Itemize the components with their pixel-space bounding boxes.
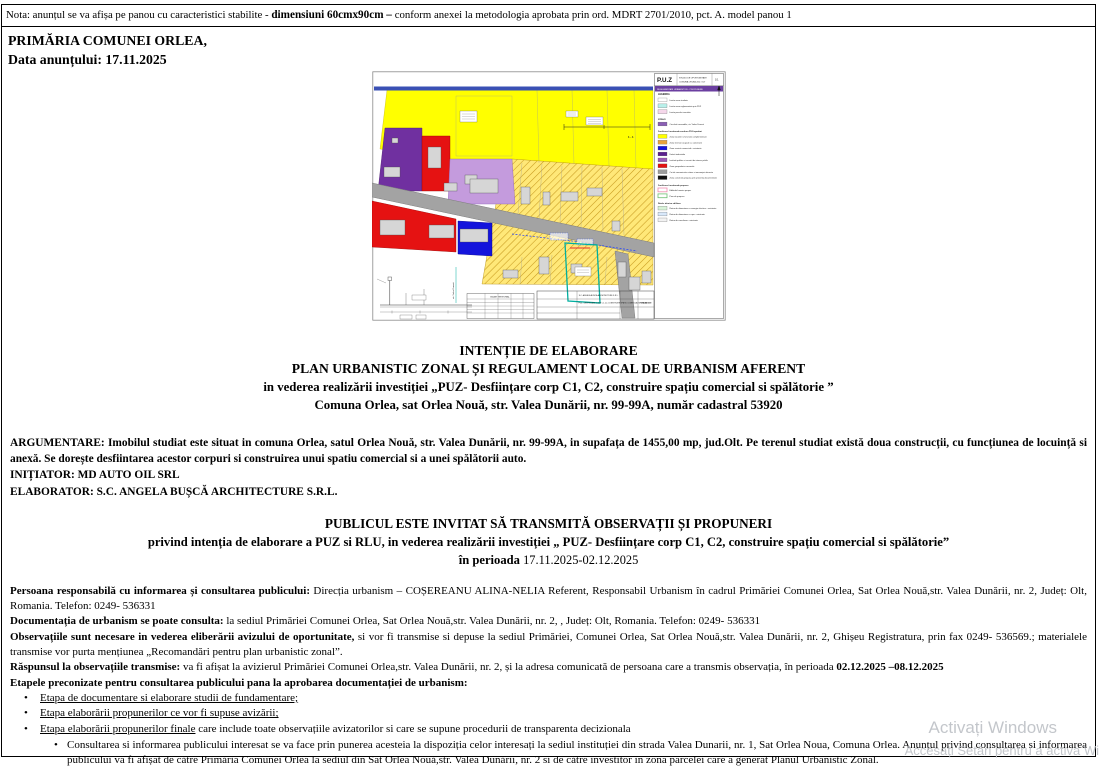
invitation-heading: PUBLICUL ESTE INVITAT SĂ TRANSMITĂ OBSER… — [2, 515, 1095, 533]
legend-swatch — [658, 122, 667, 126]
cartouche-firm: S.C. ANGELA BUSCA ARCHITECTURE S.R.L. — [578, 294, 618, 297]
legend-swatch — [658, 194, 667, 198]
legend-item-label: Edificabil maxim propus — [669, 189, 691, 192]
legend-swatch — [658, 164, 667, 168]
sheet-label: REGLEMENTARI URBANISTICE - PROPUNERE — [657, 88, 703, 91]
list-item: •Etapa elaborării propunerilor ce vor fi… — [10, 706, 1087, 722]
section-label: 1 - 1 — [628, 135, 634, 139]
elaborator-line: ELABORATOR: S.C. ANGELA BUȘCĂ ARCHITECTU… — [2, 484, 1095, 500]
note-prefix: Nota: anunțul se va afișa pe panou cu ca… — [6, 9, 271, 21]
legend-swatch — [658, 152, 667, 156]
legend-swatch — [658, 140, 667, 144]
title-line-2: PLAN URBANISTIC ZONAL ȘI REGULAMENT LOCA… — [2, 360, 1095, 378]
bilant-title: BILANT TERITORIAL — [490, 295, 510, 298]
legend-section-header: Retele tehnico edilitare — [658, 202, 682, 205]
argumentare-paragraph: ARGUMENTARE: Imobilul studiat este situa… — [2, 435, 1095, 467]
puz-subtitle-2: COMUNA ORLEA JUD. OLT — [679, 81, 706, 84]
puz-plan-drawing: 1 - 1 — [372, 71, 726, 321]
legend-section-header: Zonificare functionala conform PUG aprob… — [658, 130, 702, 133]
legend-item-label: Limita parcela investitie — [669, 111, 691, 114]
title-line-4: Comuna Orlea, sat Orlea Nouă, str. Valea… — [2, 396, 1095, 414]
legend-swatch — [658, 110, 667, 114]
puz-title: P.U.Z — [657, 77, 672, 84]
stages-list: •Etapa de documentare si elaborare studi… — [2, 691, 1095, 766]
legend-section-header: Zonificare functionala propusa — [658, 184, 689, 187]
stage-3-underlined: Etapa elaborării propunerilor finale — [40, 723, 195, 735]
announcement-document: Nota: anunțul se va afișa pe panou cu ca… — [0, 0, 1099, 766]
legend-swatch — [658, 212, 667, 216]
document-border-box: Nota: anunțul se va afișa pe panou cu ca… — [1, 4, 1096, 757]
responsible-person-label: Persoana responsabilă cu informarea și c… — [10, 585, 310, 597]
title-line-3: in vederea realizării investiției „PUZ- … — [2, 378, 1095, 396]
documentation-text: la sediul Primăriei Comunei Orlea, Sat O… — [224, 615, 761, 627]
observations-label: Observațiile sunt necesare in vederea el… — [10, 631, 354, 643]
period-dates: 17.11.2025-02.12.2025 — [523, 553, 638, 567]
legend-item-label: Retea de alimentare cu apa - existenta — [669, 213, 705, 216]
note-dimensions: dimensiuni 60cmx90cm – — [271, 9, 394, 21]
documentation-paragraph: Documentația de urbanism se poate consul… — [10, 614, 1087, 629]
public-invitation-section: PUBLICUL ESTE INVITAT SĂ TRANSMITĂ OBSER… — [2, 515, 1095, 569]
invitation-period: în perioada 17.11.2025-02.12.2025 — [2, 551, 1095, 569]
stage-2-text: Etapa elaborării propunerilor ce vor fi … — [40, 707, 279, 719]
legend-item-label: Institutii publice si servicii de intere… — [669, 159, 707, 162]
invitation-subheading: privind intenția de elaborare a PUZ si R… — [2, 533, 1095, 551]
document-header: PRIMĂRIA COMUNEI ORLEA, Data anunțului: … — [2, 27, 1095, 69]
bullet-icon: • — [24, 706, 28, 722]
legend-section-header: STRAZI — [658, 118, 666, 121]
legend-item-label: Circulatii carosabile, str. Valea Dunari… — [669, 123, 704, 126]
issuer-name: PRIMĂRIA COMUNEI ORLEA, — [8, 31, 1095, 50]
legend-item-label: Zona gospodarie comunala — [669, 165, 695, 168]
puz-subtitle-1: STUDIU DE OPORTUNITATE — [679, 77, 707, 80]
response-dates: 02.12.2025 –08.12.2025 — [836, 661, 943, 673]
legend-swatch — [658, 188, 667, 192]
legend-item-label: Parcela propusa — [669, 195, 685, 198]
puz-page-no: 1/1 — [715, 79, 719, 82]
details-section: Persoana responsabilă cu informarea și c… — [2, 584, 1095, 691]
period-label: în perioada — [459, 553, 523, 567]
responsible-person-paragraph: Persoana responsabilă cu informarea și c… — [10, 584, 1087, 615]
legend-item-label: Zona construita propusa prin prezenta do… — [669, 177, 717, 180]
legend-swatch — [658, 104, 667, 108]
bullet-icon: • — [54, 738, 58, 754]
legend-swatch — [658, 218, 667, 222]
top-strip — [374, 87, 653, 91]
stages-heading: Etapele preconizate pentru consultarea p… — [10, 676, 1087, 691]
legend-item-label: Limita zona studiata — [669, 99, 688, 102]
list-item: •Etapa de documentare si elaborare studi… — [10, 691, 1087, 707]
response-paragraph: Răspunsul la observațiile transmise: va … — [10, 660, 1087, 675]
legend-swatch — [658, 170, 667, 174]
list-item: •Consultarea si informarea publicului in… — [10, 738, 1087, 766]
legend-item-label: Retea de canalizare - existenta — [669, 219, 698, 222]
title-line-1: INTENȚIE DE ELABORARE — [2, 342, 1095, 360]
stage-3-text: care include toate observațiile avizator… — [195, 723, 630, 735]
list-item: •Etapa elaborării propunerilor finale ca… — [10, 722, 1087, 738]
note-bar: Nota: anunțul se va afișa pe panou cu ca… — [2, 5, 1095, 27]
legend-item-label: Zona servicii comerciale - existente — [669, 147, 702, 150]
street-name-label: str. Valea Dunarii — [452, 282, 455, 299]
bullet-icon: • — [24, 691, 28, 707]
legend-swatch — [658, 134, 667, 138]
legend-panel: P.U.Z STUDIU DE OPORTUNITATE COMUNA ORLE… — [654, 74, 723, 319]
zone-purple-industrial — [378, 128, 422, 191]
puz-plan-map: 1 - 1 — [372, 71, 726, 321]
legend-swatch — [658, 206, 667, 210]
stages-heading-text: Etapele preconizate pentru consultarea p… — [10, 677, 468, 689]
legend-item-label: Limita zona reglementata prin PUZ — [669, 105, 701, 108]
legend-item-label: Retea de alimentare cu energie electrica… — [669, 207, 717, 210]
legend-item-label: Zona locuinte si functiuni complementare — [669, 135, 707, 138]
initiator-line: INIȚIATOR: MD AUTO OIL SRL — [2, 467, 1095, 483]
legend-swatch — [658, 146, 667, 150]
response-text: va fi afișat la avizierul Primăriei Comu… — [180, 661, 836, 673]
legend-swatch — [658, 176, 667, 180]
announcement-date: Data anunțului: 17.11.2025 — [8, 50, 1095, 69]
documentation-label: Documentația de urbanism se poate consul… — [10, 615, 224, 627]
legend-title: LEGENDA — [658, 93, 670, 96]
legend-item-label: Zona terenuri ocupate cu constructii — [669, 141, 702, 144]
stage-1-text: Etapa de documentare si elaborare studii… — [40, 692, 298, 704]
legend-item-label: Unitati industriale — [669, 153, 686, 156]
bullet-icon: • — [24, 722, 28, 738]
legend-swatch — [658, 98, 667, 102]
announcement-title-section: INTENȚIE DE ELABORARE PLAN URBANISTIC ZO… — [2, 342, 1095, 414]
observations-paragraph: Observațiile sunt necesare in vederea el… — [10, 630, 1087, 661]
note-suffix: conform anexei la metodologia aprobata p… — [395, 9, 792, 21]
legend-swatch — [658, 158, 667, 162]
cartouche-sheet: PLANSA U1 — [640, 302, 650, 305]
consultation-text: Consultarea si informarea publicului int… — [67, 739, 1087, 766]
legend-item-label: Cai de comunicatie rutiera si amenajari … — [669, 171, 713, 174]
response-label: Răspunsul la observațiile transmise: — [10, 661, 180, 673]
